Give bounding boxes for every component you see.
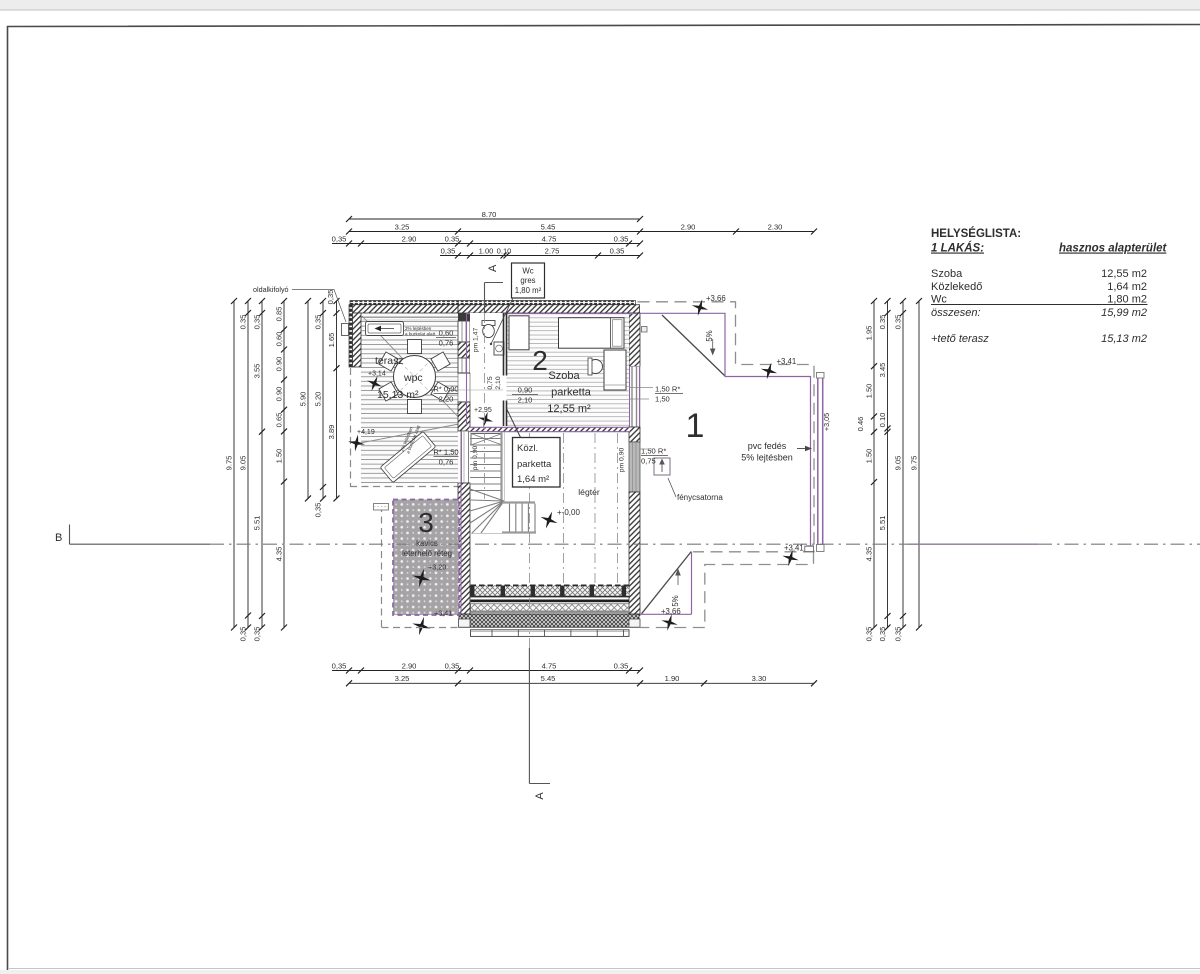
svg-text:Wc: Wc xyxy=(931,294,947,306)
svg-text:5.45: 5.45 xyxy=(541,222,556,231)
svg-text:5%: 5% xyxy=(671,595,680,606)
svg-text:0,90: 0,90 xyxy=(518,386,533,395)
svg-text:9.75: 9.75 xyxy=(910,456,919,471)
svg-text:1,64 m2: 1,64 m2 xyxy=(1107,281,1147,293)
svg-text:1,80 m²: 1,80 m² xyxy=(515,286,542,295)
svg-text:pm 1,47: pm 1,47 xyxy=(473,328,480,353)
svg-text:oldalkifolyó: oldalkifolyó xyxy=(253,285,289,294)
svg-text:1,50 R*: 1,50 R* xyxy=(655,385,680,394)
svg-text:1.50: 1.50 xyxy=(865,384,874,399)
svg-text:Szoba: Szoba xyxy=(548,370,580,382)
svg-text:pvc fedés: pvc fedés xyxy=(748,441,787,451)
svg-text:2.90: 2.90 xyxy=(681,222,696,231)
svg-text:0,75: 0,75 xyxy=(641,457,656,466)
svg-text:+3,41: +3,41 xyxy=(784,544,804,553)
svg-text:2,10: 2,10 xyxy=(495,376,502,389)
svg-text:0.35: 0.35 xyxy=(610,246,625,255)
svg-text:2.30: 2.30 xyxy=(768,222,783,231)
svg-text:0,35: 0,35 xyxy=(326,290,335,305)
svg-text:1,80 m2: 1,80 m2 xyxy=(1107,294,1147,306)
svg-text:8.70: 8.70 xyxy=(482,210,497,219)
svg-text:5.45: 5.45 xyxy=(541,674,556,683)
svg-text:+3,41: +3,41 xyxy=(777,357,797,366)
svg-text:4.35: 4.35 xyxy=(865,547,874,562)
svg-text:fénycsatorna: fénycsatorna xyxy=(677,493,723,502)
svg-text:0,35: 0,35 xyxy=(441,246,456,255)
svg-text:Wc: Wc xyxy=(522,267,533,276)
svg-text:0.85: 0.85 xyxy=(275,307,284,322)
svg-text:0.35: 0.35 xyxy=(445,234,460,243)
svg-text:leterhelő réteg: leterhelő réteg xyxy=(402,549,452,558)
svg-text:Szoba: Szoba xyxy=(931,268,963,280)
svg-text:R* 1,50: R* 1,50 xyxy=(433,448,458,457)
svg-text:3.25: 3.25 xyxy=(395,222,410,231)
svg-text:összesen:: összesen: xyxy=(931,307,981,319)
svg-text:0,35: 0,35 xyxy=(894,627,903,642)
svg-text:0.10: 0.10 xyxy=(497,246,512,255)
svg-text:+3,05: +3,05 xyxy=(822,413,831,431)
svg-text:0,35: 0,35 xyxy=(239,627,248,642)
svg-text:1,50 R*: 1,50 R* xyxy=(641,447,666,456)
svg-text:R* 0,90: R* 0,90 xyxy=(433,385,458,394)
svg-text:9.05: 9.05 xyxy=(894,456,903,471)
svg-text:2,10: 2,10 xyxy=(518,396,533,405)
svg-text:15,13 m²: 15,13 m² xyxy=(377,389,419,401)
svg-text:0,76: 0,76 xyxy=(439,339,454,348)
svg-text:+3,66: +3,66 xyxy=(706,294,726,303)
svg-text:12,55 m²: 12,55 m² xyxy=(547,403,591,415)
svg-text:Közlekedő: Közlekedő xyxy=(931,281,982,293)
svg-text:+tető terasz: +tető terasz xyxy=(931,333,989,345)
svg-text:0,35: 0,35 xyxy=(314,315,323,330)
svg-text:0.10: 0.10 xyxy=(878,413,887,428)
svg-text:0,35: 0,35 xyxy=(332,661,347,670)
svg-text:parketta: parketta xyxy=(551,387,592,399)
svg-text:A: A xyxy=(487,264,499,272)
svg-text:5% lejtésben: 5% lejtésben xyxy=(741,453,793,463)
svg-text:1 LAKÁS:: 1 LAKÁS: xyxy=(931,242,984,255)
svg-text:0,35: 0,35 xyxy=(878,627,887,642)
svg-text:0.90: 0.90 xyxy=(275,357,284,372)
svg-text:hasznos alapterület: hasznos alapterület xyxy=(1059,243,1168,255)
svg-text:1.90: 1.90 xyxy=(665,674,680,683)
svg-text:kavics: kavics xyxy=(416,539,438,548)
svg-text:0.65: 0.65 xyxy=(275,413,284,428)
svg-text:1.50: 1.50 xyxy=(865,449,874,464)
svg-text:2.90: 2.90 xyxy=(402,661,417,670)
svg-text:0,60: 0,60 xyxy=(275,332,284,347)
svg-text:1.00: 1.00 xyxy=(479,246,494,255)
svg-text:15,99 m2: 15,99 m2 xyxy=(1101,307,1147,319)
svg-text:0,35: 0,35 xyxy=(332,234,347,243)
svg-text:3.55: 3.55 xyxy=(253,364,262,379)
svg-text:5.51: 5.51 xyxy=(878,516,887,531)
svg-text:+4,19: +4,19 xyxy=(357,429,375,436)
svg-text:pm 0,90: pm 0,90 xyxy=(619,448,626,473)
svg-text:2% lejtésben: 2% lejtésben xyxy=(405,326,432,331)
svg-text:2,20: 2,20 xyxy=(439,395,454,404)
svg-text:9.75: 9.75 xyxy=(225,456,234,471)
svg-text:0.90: 0.90 xyxy=(275,387,284,402)
svg-text:2.90: 2.90 xyxy=(402,234,417,243)
svg-text:0,60: 0,60 xyxy=(439,329,454,338)
svg-text:wpc: wpc xyxy=(403,372,423,384)
svg-text:1: 1 xyxy=(686,407,705,445)
svg-text:a burkolat alatt: a burkolat alatt xyxy=(405,332,436,337)
svg-text:3.25: 3.25 xyxy=(395,674,410,683)
svg-text:0,35: 0,35 xyxy=(865,627,874,642)
svg-text:0,35: 0,35 xyxy=(253,315,262,330)
svg-text:0.35: 0.35 xyxy=(878,315,887,330)
svg-text:0.35: 0.35 xyxy=(614,234,629,243)
svg-text:B: B xyxy=(55,532,62,544)
svg-text:0,35: 0,35 xyxy=(253,627,262,642)
svg-text:9.05: 9.05 xyxy=(239,456,248,471)
svg-text:0,76: 0,76 xyxy=(439,458,454,467)
svg-text:HELYSÉGLISTA:: HELYSÉGLISTA: xyxy=(931,227,1021,240)
svg-text:Közl.: Közl. xyxy=(517,443,538,454)
svg-text:5.51: 5.51 xyxy=(253,516,262,531)
svg-text:0,75: 0,75 xyxy=(487,376,494,389)
svg-text:1,64 m²: 1,64 m² xyxy=(517,474,549,485)
svg-text:+3,14: +3,14 xyxy=(368,371,386,378)
svg-text:3: 3 xyxy=(418,507,434,538)
svg-text:5.20: 5.20 xyxy=(314,392,323,407)
svg-text:3.45: 3.45 xyxy=(878,363,887,378)
svg-text:4.35: 4.35 xyxy=(275,547,284,562)
svg-text:+3,66: +3,66 xyxy=(661,607,681,616)
svg-text:+2,95: +2,95 xyxy=(474,407,492,414)
svg-text:3.89: 3.89 xyxy=(327,425,336,440)
svg-text:gres: gres xyxy=(520,276,535,285)
svg-text:4.75: 4.75 xyxy=(542,234,557,243)
svg-text:terasz: terasz xyxy=(375,355,404,367)
svg-text:0.35: 0.35 xyxy=(894,315,903,330)
svg-text:A: A xyxy=(534,792,546,800)
svg-text:4.75: 4.75 xyxy=(542,661,557,670)
svg-text:0,35: 0,35 xyxy=(445,661,460,670)
svg-text:2: 2 xyxy=(532,345,548,376)
svg-text:+3,20: +3,20 xyxy=(428,563,446,572)
svg-text:0.46: 0.46 xyxy=(856,417,865,432)
svg-text:1.65: 1.65 xyxy=(327,333,336,348)
svg-text:parketta: parketta xyxy=(517,459,552,470)
svg-text:légtér: légtér xyxy=(578,487,600,497)
svg-text:15,13 m2: 15,13 m2 xyxy=(1101,333,1147,345)
svg-text:0.35: 0.35 xyxy=(239,315,248,330)
svg-text:0.35: 0.35 xyxy=(614,661,629,670)
svg-text:1.95: 1.95 xyxy=(865,326,874,341)
svg-text:5.90: 5.90 xyxy=(299,392,308,407)
svg-text:2.75: 2.75 xyxy=(545,246,560,255)
svg-text:3.30: 3.30 xyxy=(752,674,767,683)
svg-text:0,35: 0,35 xyxy=(314,503,323,518)
svg-text:1,50: 1,50 xyxy=(655,395,670,404)
svg-text:+3,41: +3,41 xyxy=(434,609,452,618)
svg-text:12,55 m2: 12,55 m2 xyxy=(1101,268,1147,280)
svg-text:+-0,00: +-0,00 xyxy=(557,508,580,517)
svg-text:1.50: 1.50 xyxy=(275,449,284,464)
